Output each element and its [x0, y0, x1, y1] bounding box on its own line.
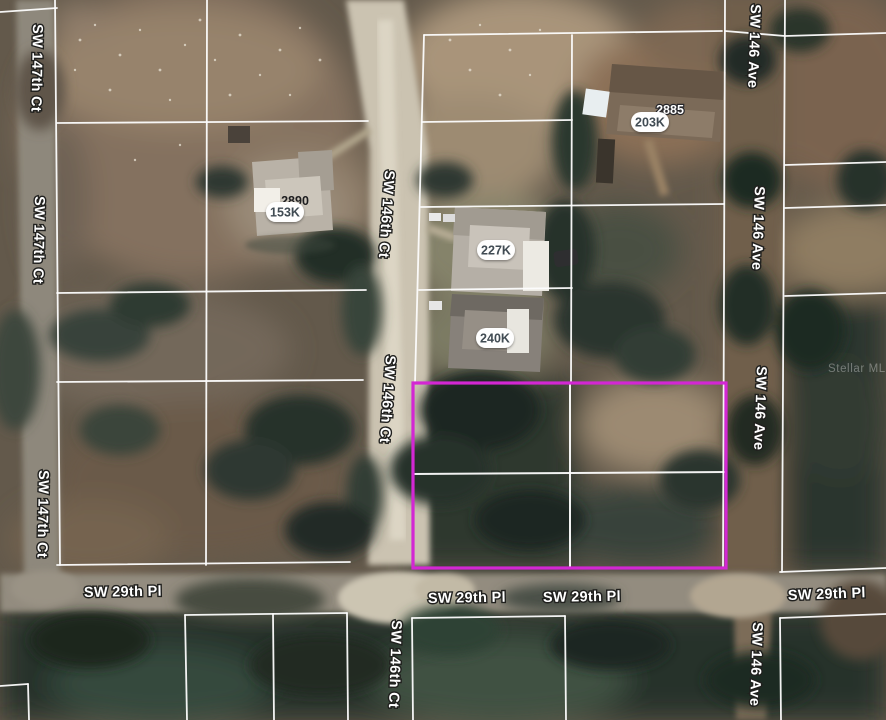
price-pill-240k[interactable]: 240K [476, 328, 514, 348]
satellite-map-canvas[interactable]: SW 147th Ct SW 147th Ct SW 147th Ct SW 1… [0, 0, 886, 720]
car [553, 248, 579, 267]
price-pill-227k[interactable]: 227K [477, 240, 515, 260]
street-label-sw147-1: SW 147th Ct [27, 24, 45, 112]
car [429, 213, 441, 221]
map-svg: SW 147th Ct SW 147th Ct SW 147th Ct SW 1… [0, 0, 886, 720]
price-pill-153k[interactable]: 153K [266, 202, 304, 222]
price-pill-203k-label[interactable]: 203K [635, 116, 665, 130]
street-label-sw29-3: SW 29th Pl [543, 589, 621, 606]
shed [228, 126, 250, 143]
car [443, 214, 455, 222]
street-label-sw146ct-3: SW 146th Ct [385, 620, 404, 708]
price-pill-240k-label[interactable]: 240K [480, 332, 510, 346]
street-label-sw147-3: SW 147th Ct [33, 470, 51, 558]
street-label-sw146ave-1: SW 146 Ave [744, 4, 763, 89]
street-label-sw146ave-2: SW 146 Ave [748, 186, 767, 271]
street-label-sw29-1: SW 29th Pl [84, 584, 162, 601]
price-pill-203k[interactable]: 203K [631, 112, 669, 132]
rv [582, 88, 609, 117]
trailer [596, 139, 615, 184]
street-label-sw29-2: SW 29th Pl [428, 590, 506, 607]
stellar-mls-watermark: Stellar MLS [828, 363, 886, 375]
price-pill-153k-label[interactable]: 153K [270, 206, 300, 220]
price-pill-227k-label[interactable]: 227K [481, 244, 511, 258]
street-label-sw29-4: SW 29th Pl [788, 585, 866, 604]
garage [523, 241, 549, 291]
street-label-sw147-2: SW 147th Ct [29, 196, 47, 284]
car [429, 301, 442, 310]
street-label-sw146ave-3: SW 146 Ave [750, 366, 769, 451]
street-label-sw146ave-4: SW 146 Ave [746, 622, 765, 707]
